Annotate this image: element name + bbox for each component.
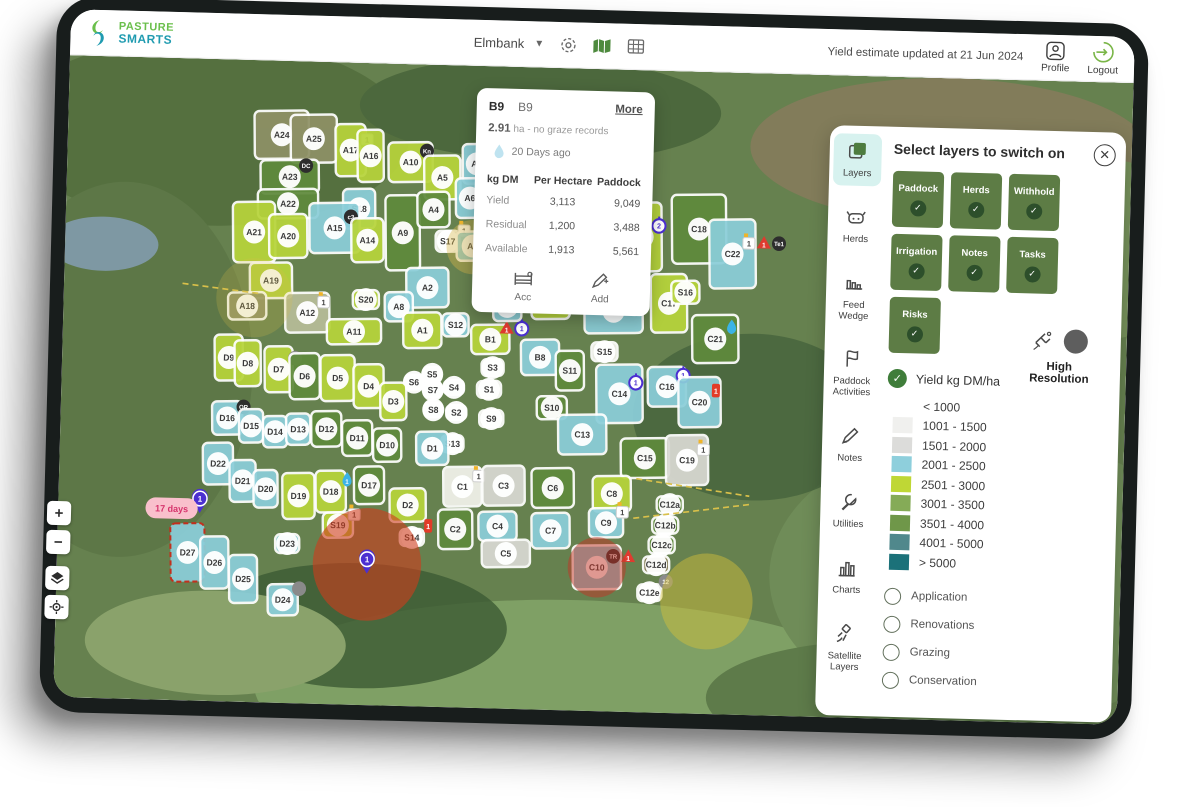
paddock-label: C18 — [691, 224, 707, 235]
legend-label: 2001 - 2500 — [921, 458, 985, 474]
paddock-label: D9 — [223, 352, 234, 362]
row-paddock: 3,488 — [593, 215, 640, 240]
paddock-A20[interactable]: A20 — [268, 213, 309, 259]
paddock-label: S15 — [597, 346, 613, 357]
paddock-S3[interactable]: S3 — [481, 356, 504, 380]
svg-text:1: 1 — [426, 523, 430, 531]
popup-tab-secondary[interactable]: B9 — [518, 100, 533, 114]
paddock-label: D26 — [206, 557, 222, 568]
charts-icon — [835, 556, 858, 582]
layer-toggle-paddock[interactable]: Paddock✓ — [892, 171, 944, 228]
paddock-D10[interactable]: D10 — [372, 428, 402, 463]
rail-label: Charts — [832, 585, 860, 597]
map-layers-button[interactable] — [45, 566, 70, 591]
paddock-D19[interactable]: D19 — [281, 472, 316, 520]
paddock-C3[interactable]: C3 — [481, 465, 526, 507]
map-area[interactable]: A24A25A171A16A10KnA5A7A23DCA22A21A20S18A… — [53, 55, 1133, 725]
layers-icon — [846, 140, 869, 166]
paddock-label: A21 — [246, 227, 262, 238]
paddock-label: C9 — [600, 518, 611, 528]
paddock-label: C1 — [457, 481, 468, 491]
chip-label: Tasks — [1019, 249, 1046, 261]
paddock-S12[interactable]: S12 — [442, 313, 469, 338]
legend-swatch — [892, 437, 912, 454]
paddock-D25[interactable]: D25 — [228, 554, 259, 604]
layers-panel: LayersHerdsFeed WedgePaddock ActivitiesN… — [815, 125, 1126, 723]
paddock-label: S7 — [427, 385, 438, 395]
rail-label: Notes — [837, 454, 862, 466]
logout-label: Logout — [1087, 65, 1118, 77]
brand-line2: SMARTS — [118, 32, 174, 45]
paddock-A14[interactable]: A14 — [350, 217, 385, 263]
paddock-D20[interactable]: D20 — [252, 469, 278, 508]
paddock-S15[interactable]: S15 — [591, 340, 618, 364]
paddock-label: C3 — [498, 480, 509, 490]
row-per-hectare: 3,113 — [531, 189, 594, 215]
zoom-out-button[interactable]: − — [46, 530, 71, 555]
pasturesmarts-swirl-icon — [86, 17, 113, 48]
paddock-C6[interactable]: C6 — [530, 467, 575, 509]
popup-area-rest: ha - no graze records — [510, 124, 608, 138]
paddock-C13[interactable]: C13 — [557, 413, 608, 456]
paddock-label: B8 — [534, 352, 545, 362]
logout-button[interactable]: Logout — [1087, 41, 1118, 77]
paddock-label: S11 — [562, 365, 577, 376]
paddock-label: D17 — [361, 480, 377, 491]
sidebar-item-charts[interactable]: Charts — [822, 550, 871, 603]
popup-table-row: Available1,9135,561 — [485, 236, 640, 264]
paddock-label: C12b — [655, 520, 676, 531]
popup-days-label: 20 Days ago — [511, 145, 570, 159]
tablet-frame: + − PASTURE SMARTS — [39, 0, 1149, 740]
days-pill: 17 days — [145, 497, 198, 519]
paddock-label: S12 — [448, 320, 464, 331]
row-paddock: 9,049 — [593, 191, 640, 216]
sidebar-item-layers[interactable]: Layers — [833, 133, 882, 186]
popup-col-per-hectare: Per Hectare — [532, 171, 595, 191]
legend-label: 4001 - 5000 — [919, 536, 983, 552]
chip-label: Withhold — [1014, 185, 1055, 197]
legend-swatch — [893, 398, 913, 415]
paddock-label: D2 — [402, 500, 413, 510]
paddock-B8[interactable]: B8 — [520, 338, 560, 376]
water-drop-icon — [493, 143, 504, 158]
row-per-hectare: 1,200 — [531, 213, 594, 239]
legend-label: 1001 - 1500 — [922, 419, 986, 435]
feed-wedge-icon — [843, 271, 866, 297]
map-zoom-controls: + − — [46, 501, 71, 555]
paddock-label: C4 — [492, 521, 503, 531]
rail-label: Utilities — [833, 519, 864, 531]
paddock-label: D13 — [290, 424, 306, 435]
panel-title: Select layers to switch on — [894, 141, 1112, 163]
svg-text:1: 1 — [365, 555, 370, 564]
action-label: Acc — [514, 292, 531, 303]
paddock-D13[interactable]: D13 — [285, 413, 311, 446]
yield-updated-text: Yield estimate updated at 21 Jun 2024 — [827, 46, 1023, 63]
svg-text:1: 1 — [520, 325, 524, 333]
paddock-S20[interactable]: S20 — [352, 288, 379, 312]
popup-days-row: 20 Days ago — [487, 143, 641, 162]
herds-icon — [845, 205, 868, 231]
sidebar-item-notes[interactable]: Notes — [825, 418, 874, 471]
sidebar-item-utilities[interactable]: Utilities — [824, 484, 873, 537]
legend-swatch — [891, 476, 911, 493]
locate-button[interactable] — [44, 595, 69, 620]
paddock-C21[interactable]: C21 — [691, 314, 740, 365]
legend-label: 2501 - 3000 — [921, 477, 985, 493]
profile-icon — [1045, 41, 1066, 62]
paddock-label: D7 — [273, 364, 284, 374]
popup-tab-primary[interactable]: B9 — [489, 99, 505, 113]
paddock-label: D25 — [235, 574, 251, 585]
paddock-label: D1 — [427, 443, 438, 453]
svg-text:1: 1 — [714, 388, 718, 396]
farm-selector-value: Elmbank — [474, 35, 525, 51]
paddock-C2[interactable]: C2 — [437, 508, 473, 550]
paddock-label: A14 — [359, 235, 375, 246]
row-paddock: 5,561 — [592, 239, 639, 264]
paddock-label: S10 — [544, 402, 560, 413]
radio-icon — [883, 615, 900, 632]
option-label: Grazing — [910, 646, 951, 659]
popup-actions: AccAdd — [484, 270, 639, 306]
rail-label: Satellite Layers — [822, 651, 867, 674]
option-renovations[interactable]: Renovations — [883, 615, 1099, 638]
add-action-button[interactable]: Add — [591, 273, 610, 305]
paddock-D12[interactable]: D12 — [310, 410, 342, 447]
popup-area-value: 2.91 — [488, 122, 511, 135]
paddock-label: A25 — [306, 133, 322, 144]
paddock-S11[interactable]: S11 — [555, 350, 585, 391]
check-icon: ✓ — [1026, 203, 1042, 219]
more-link[interactable]: More — [615, 103, 643, 116]
locate-target-icon — [49, 600, 63, 614]
paddock-label: C13 — [574, 429, 590, 440]
paddock-A4[interactable]: A4 — [416, 191, 450, 228]
paddock-label: D8 — [242, 358, 253, 368]
paddock-label: S4 — [449, 382, 460, 392]
svg-text:DC: DC — [302, 163, 311, 170]
radio-icon — [882, 671, 899, 688]
paddock-label: C22 — [725, 249, 741, 260]
paddock-label: D10 — [379, 440, 395, 451]
satellite-layers-icon — [834, 622, 857, 648]
legend-swatch — [889, 554, 909, 571]
paddock-D1[interactable]: D1 — [415, 431, 449, 466]
paddock-label: D21 — [235, 476, 251, 487]
radio-icon — [884, 587, 901, 604]
paddock-label: S9 — [486, 413, 497, 423]
paddock-label: A23 — [282, 171, 298, 182]
paddock-label: C15 — [637, 453, 653, 464]
paddock-A16[interactable]: A16 — [356, 129, 385, 183]
sidebar-item-paddock-activities[interactable]: Paddock Activities — [827, 342, 877, 406]
paddock-D17[interactable]: D17 — [353, 466, 385, 505]
paddock-label: C12a — [659, 499, 680, 510]
paddock-C1[interactable]: C11 — [442, 465, 485, 507]
check-icon: ✓ — [966, 264, 982, 280]
high-resolution-label: High Resolution — [1016, 360, 1103, 386]
check-icon: ✓ — [906, 326, 922, 342]
popup-table: kg DM Per Hectare Paddock Yield3,1139,04… — [485, 170, 641, 264]
paddock-label: D19 — [291, 491, 307, 502]
paddock-S16[interactable]: S16 — [671, 280, 700, 305]
profile-label: Profile — [1041, 63, 1070, 75]
legend-swatch — [890, 495, 910, 512]
legend-label: < 1000 — [923, 399, 960, 414]
legend-row: > 5000 — [889, 552, 1101, 577]
radio-icon — [882, 643, 899, 660]
paddock-S1[interactable]: S1 — [476, 378, 501, 402]
paddock-D26[interactable]: D26 — [199, 536, 230, 590]
action-label: Add — [591, 294, 609, 305]
layer-toggle-risks[interactable]: Risks✓ — [889, 297, 941, 354]
high-resolution-toggle[interactable] — [1064, 329, 1089, 354]
app-screen: PASTURE SMARTS Elmbank ▼ — [53, 9, 1135, 725]
popup-area-line: 2.91 ha - no graze records — [488, 122, 642, 138]
svg-text:1: 1 — [505, 327, 509, 334]
notes-icon — [839, 425, 862, 451]
paddock-label: S3 — [487, 362, 498, 372]
paddock-label: S8 — [428, 405, 439, 415]
paddock-label: S5 — [427, 369, 438, 379]
layer-toggle-notes[interactable]: Notes✓ — [948, 235, 1000, 292]
profile-button[interactable]: Profile — [1041, 41, 1070, 75]
satellite-icon — [1032, 329, 1055, 352]
legend-label: 3501 - 4000 — [920, 516, 984, 532]
paddock-label: A2 — [422, 282, 433, 292]
option-label: Application — [911, 590, 968, 603]
svg-text:Te1: Te1 — [774, 241, 785, 248]
option-label: Renovations — [910, 618, 974, 632]
paddock-label: A15 — [327, 223, 343, 234]
paddock-D3[interactable]: D3 — [379, 382, 407, 421]
svg-text:2: 2 — [657, 222, 661, 230]
svg-text:1: 1 — [762, 242, 766, 249]
edit-icon — [591, 273, 609, 292]
legend-label: > 5000 — [919, 555, 956, 570]
paddock-label: D3 — [388, 396, 399, 406]
chip-label: Notes — [961, 247, 988, 259]
svg-text:1: 1 — [626, 556, 630, 563]
utilities-icon — [837, 490, 860, 516]
paddock-label: S2 — [451, 407, 462, 417]
paddock-label: S6 — [409, 377, 420, 387]
paddock-D5[interactable]: D5 — [319, 354, 356, 402]
paddock-C15[interactable]: C15 — [620, 437, 671, 480]
chip-label: Risks — [902, 309, 928, 321]
paddock-label: C2 — [450, 524, 461, 534]
row-label: Residual — [485, 212, 531, 237]
paddock-label: D18 — [323, 486, 339, 497]
paddock-popup: B9 B9 More 2.91 ha - no graze records 20… — [471, 88, 655, 317]
row-label: Yield — [486, 188, 532, 213]
legend-swatch — [890, 515, 910, 532]
paddock-C12b[interactable]: C12b — [652, 514, 679, 538]
check-icon: ✓ — [910, 200, 926, 216]
rail-label: Paddock Activities — [829, 377, 874, 400]
paddock-label: D20 — [258, 484, 274, 495]
legend-label: 3001 - 3500 — [920, 497, 984, 513]
row-per-hectare: 1,913 — [530, 237, 593, 263]
acc-action-button[interactable]: Acc — [513, 271, 534, 304]
paddock-label: D24 — [275, 595, 291, 606]
paddock-label: D15 — [243, 421, 259, 432]
grid-icon[interactable] — [626, 36, 647, 57]
layers-diamond-icon — [50, 571, 64, 585]
paddock-label: A10 — [403, 157, 419, 168]
map-extra-controls — [44, 566, 69, 620]
paddock-label: C12e — [639, 587, 660, 598]
paddock-label: D11 — [349, 433, 365, 444]
layer-toggle-herds[interactable]: Herds✓ — [950, 172, 1002, 229]
gate-icon — [513, 271, 533, 291]
paddock-D11[interactable]: D11 — [341, 419, 373, 456]
layer-toggle-tasks[interactable]: Tasks✓ — [1006, 237, 1058, 294]
paddock-label: A11 — [346, 326, 362, 337]
high-resolution-block: High Resolution — [1016, 328, 1103, 386]
close-icon[interactable]: ✕ — [1093, 144, 1116, 167]
zoom-in-button[interactable]: + — [47, 501, 72, 526]
stage: + − PASTURE SMARTS — [0, 0, 1200, 807]
paddock-label: C21 — [707, 334, 723, 345]
brand-text: PASTURE SMARTS — [118, 21, 174, 45]
legend-label: 1501 - 2000 — [922, 438, 986, 454]
paddock-label: D5 — [332, 373, 343, 383]
paddock-label: C14 — [611, 389, 627, 400]
paddock-C4[interactable]: C4 — [478, 510, 518, 542]
top-bar-right: Yield estimate updated at 21 Jun 2024 Pr… — [827, 34, 1119, 77]
paddock-label: D6 — [299, 371, 310, 381]
svg-text:1: 1 — [198, 494, 203, 503]
map-icon[interactable] — [592, 35, 613, 56]
sidebar-item-herds[interactable]: Herds — [831, 199, 880, 252]
popup-tabs: B9 B9 More — [489, 99, 643, 117]
paddock-label: C19 — [679, 455, 695, 466]
check-icon: ✓ — [968, 201, 984, 217]
layer-toggle-withhold[interactable]: Withhold✓ — [1008, 174, 1060, 231]
paddock-activities-icon — [841, 348, 864, 374]
paddock-A25[interactable]: A25 — [289, 113, 338, 164]
paddock-label: A12 — [299, 307, 315, 318]
paddock-C7[interactable]: C7 — [530, 512, 570, 550]
paddock-label: A22 — [280, 198, 296, 209]
svg-text:1: 1 — [634, 379, 638, 387]
paddock-label: D22 — [210, 458, 226, 469]
paddock-label: C5 — [500, 548, 511, 558]
paddock-A1[interactable]: A1 — [402, 311, 442, 349]
paddock-label: A16 — [363, 151, 379, 162]
paddock-label: S16 — [678, 287, 694, 298]
legend-swatch — [892, 417, 912, 434]
row-label: Available — [485, 236, 531, 261]
option-application[interactable]: Application — [884, 587, 1100, 610]
check-icon: ✓ — [1024, 266, 1040, 282]
paddock-label: C6 — [547, 483, 558, 493]
layer-toggle-irrigation[interactable]: Irrigation✓ — [890, 234, 942, 291]
svg-text:17 days: 17 days — [155, 503, 188, 514]
paddock-label: A24 — [274, 130, 290, 141]
yield-checkbox-label: Yield kg DM/ha — [916, 372, 1001, 388]
paddock-label: C8 — [606, 489, 617, 499]
yield-checkbox[interactable]: ✓ — [888, 369, 907, 388]
paddock-label: A1 — [417, 325, 428, 335]
farm-selector[interactable]: Elmbank ▼ — [474, 35, 545, 52]
paddock-C19[interactable]: C191 — [664, 434, 709, 487]
paddock-label: A8 — [393, 302, 404, 312]
brand-logo: PASTURE SMARTS — [86, 17, 174, 49]
check-icon: ✓ — [908, 263, 924, 279]
paddock-C12c[interactable]: C12c — [648, 533, 675, 557]
sidebar-item-feed-wedge[interactable]: Feed Wedge — [829, 265, 879, 329]
paddock-label: D16 — [219, 413, 235, 424]
paddock-D14[interactable]: D14 — [262, 415, 288, 448]
paddock-D23[interactable]: D23 — [275, 532, 300, 556]
paddock-label: C7 — [545, 525, 556, 535]
top-bar-center: Elmbank ▼ — [473, 32, 646, 57]
paddock-C20[interactable]: C201 — [677, 376, 722, 429]
paddock-D8[interactable]: D8 — [233, 339, 262, 386]
legend-swatch — [889, 534, 909, 551]
paddock-C12d[interactable]: C12d — [643, 553, 670, 577]
paddock-label: D27 — [180, 547, 196, 558]
paddock-label: C12c — [651, 540, 672, 551]
paddock-label: A5 — [437, 172, 448, 182]
paddock-label: D23 — [279, 538, 295, 549]
chip-label: Paddock — [898, 182, 938, 194]
paddock-label: D14 — [267, 426, 283, 437]
popup-col-kgdm: kg DM — [487, 170, 533, 189]
logout-icon — [1092, 41, 1115, 64]
paddock-label: C16 — [659, 381, 675, 392]
paddock-label: C20 — [692, 397, 708, 408]
popup-col-paddock: Paddock — [594, 173, 641, 192]
paddock-C5[interactable]: C5 — [481, 538, 531, 568]
option-label: Conservation — [909, 674, 977, 688]
rail-label: Layers — [843, 168, 872, 180]
chip-label: Herds — [963, 184, 990, 196]
rail-label: Herds — [843, 234, 869, 246]
gps-scan-icon[interactable] — [558, 34, 579, 55]
paddock-label: D12 — [318, 424, 334, 435]
paddock-label: S1 — [484, 384, 495, 394]
panel-main: Select layers to switch on ✕ Paddock✓Her… — [871, 127, 1126, 723]
paddock-A11[interactable]: A11 — [326, 317, 382, 345]
paddock-D6[interactable]: D6 — [288, 352, 321, 400]
paddock-label: A4 — [428, 204, 439, 214]
rail-label: Feed Wedge — [831, 300, 876, 323]
svg-text:Kn: Kn — [423, 148, 431, 155]
sidebar-item-satellite-layers[interactable]: Satellite Layers — [820, 616, 870, 680]
paddock-label: B1 — [485, 334, 496, 344]
activity-options: ApplicationRenovationsGrazingConservatio… — [882, 587, 1101, 694]
option-conservation[interactable]: Conservation — [882, 671, 1098, 694]
chevron-down-icon: ▼ — [534, 38, 544, 49]
paddock-D18[interactable]: D181 — [314, 470, 351, 514]
paddock-label: A9 — [397, 228, 408, 238]
yield-legend: < 10001001 - 15001501 - 20002001 - 25002… — [889, 396, 1106, 577]
legend-swatch — [891, 456, 911, 473]
paddock-label: A20 — [280, 231, 296, 242]
chip-label: Irrigation — [896, 245, 937, 257]
paddock-D15[interactable]: D15 — [238, 408, 264, 443]
option-grazing[interactable]: Grazing — [882, 643, 1098, 666]
paddock-C12a[interactable]: C12a — [656, 493, 683, 517]
paddock-label: S20 — [358, 294, 374, 305]
paddock-S9[interactable]: S9 — [479, 407, 504, 431]
paddock-label: D4 — [363, 381, 374, 391]
